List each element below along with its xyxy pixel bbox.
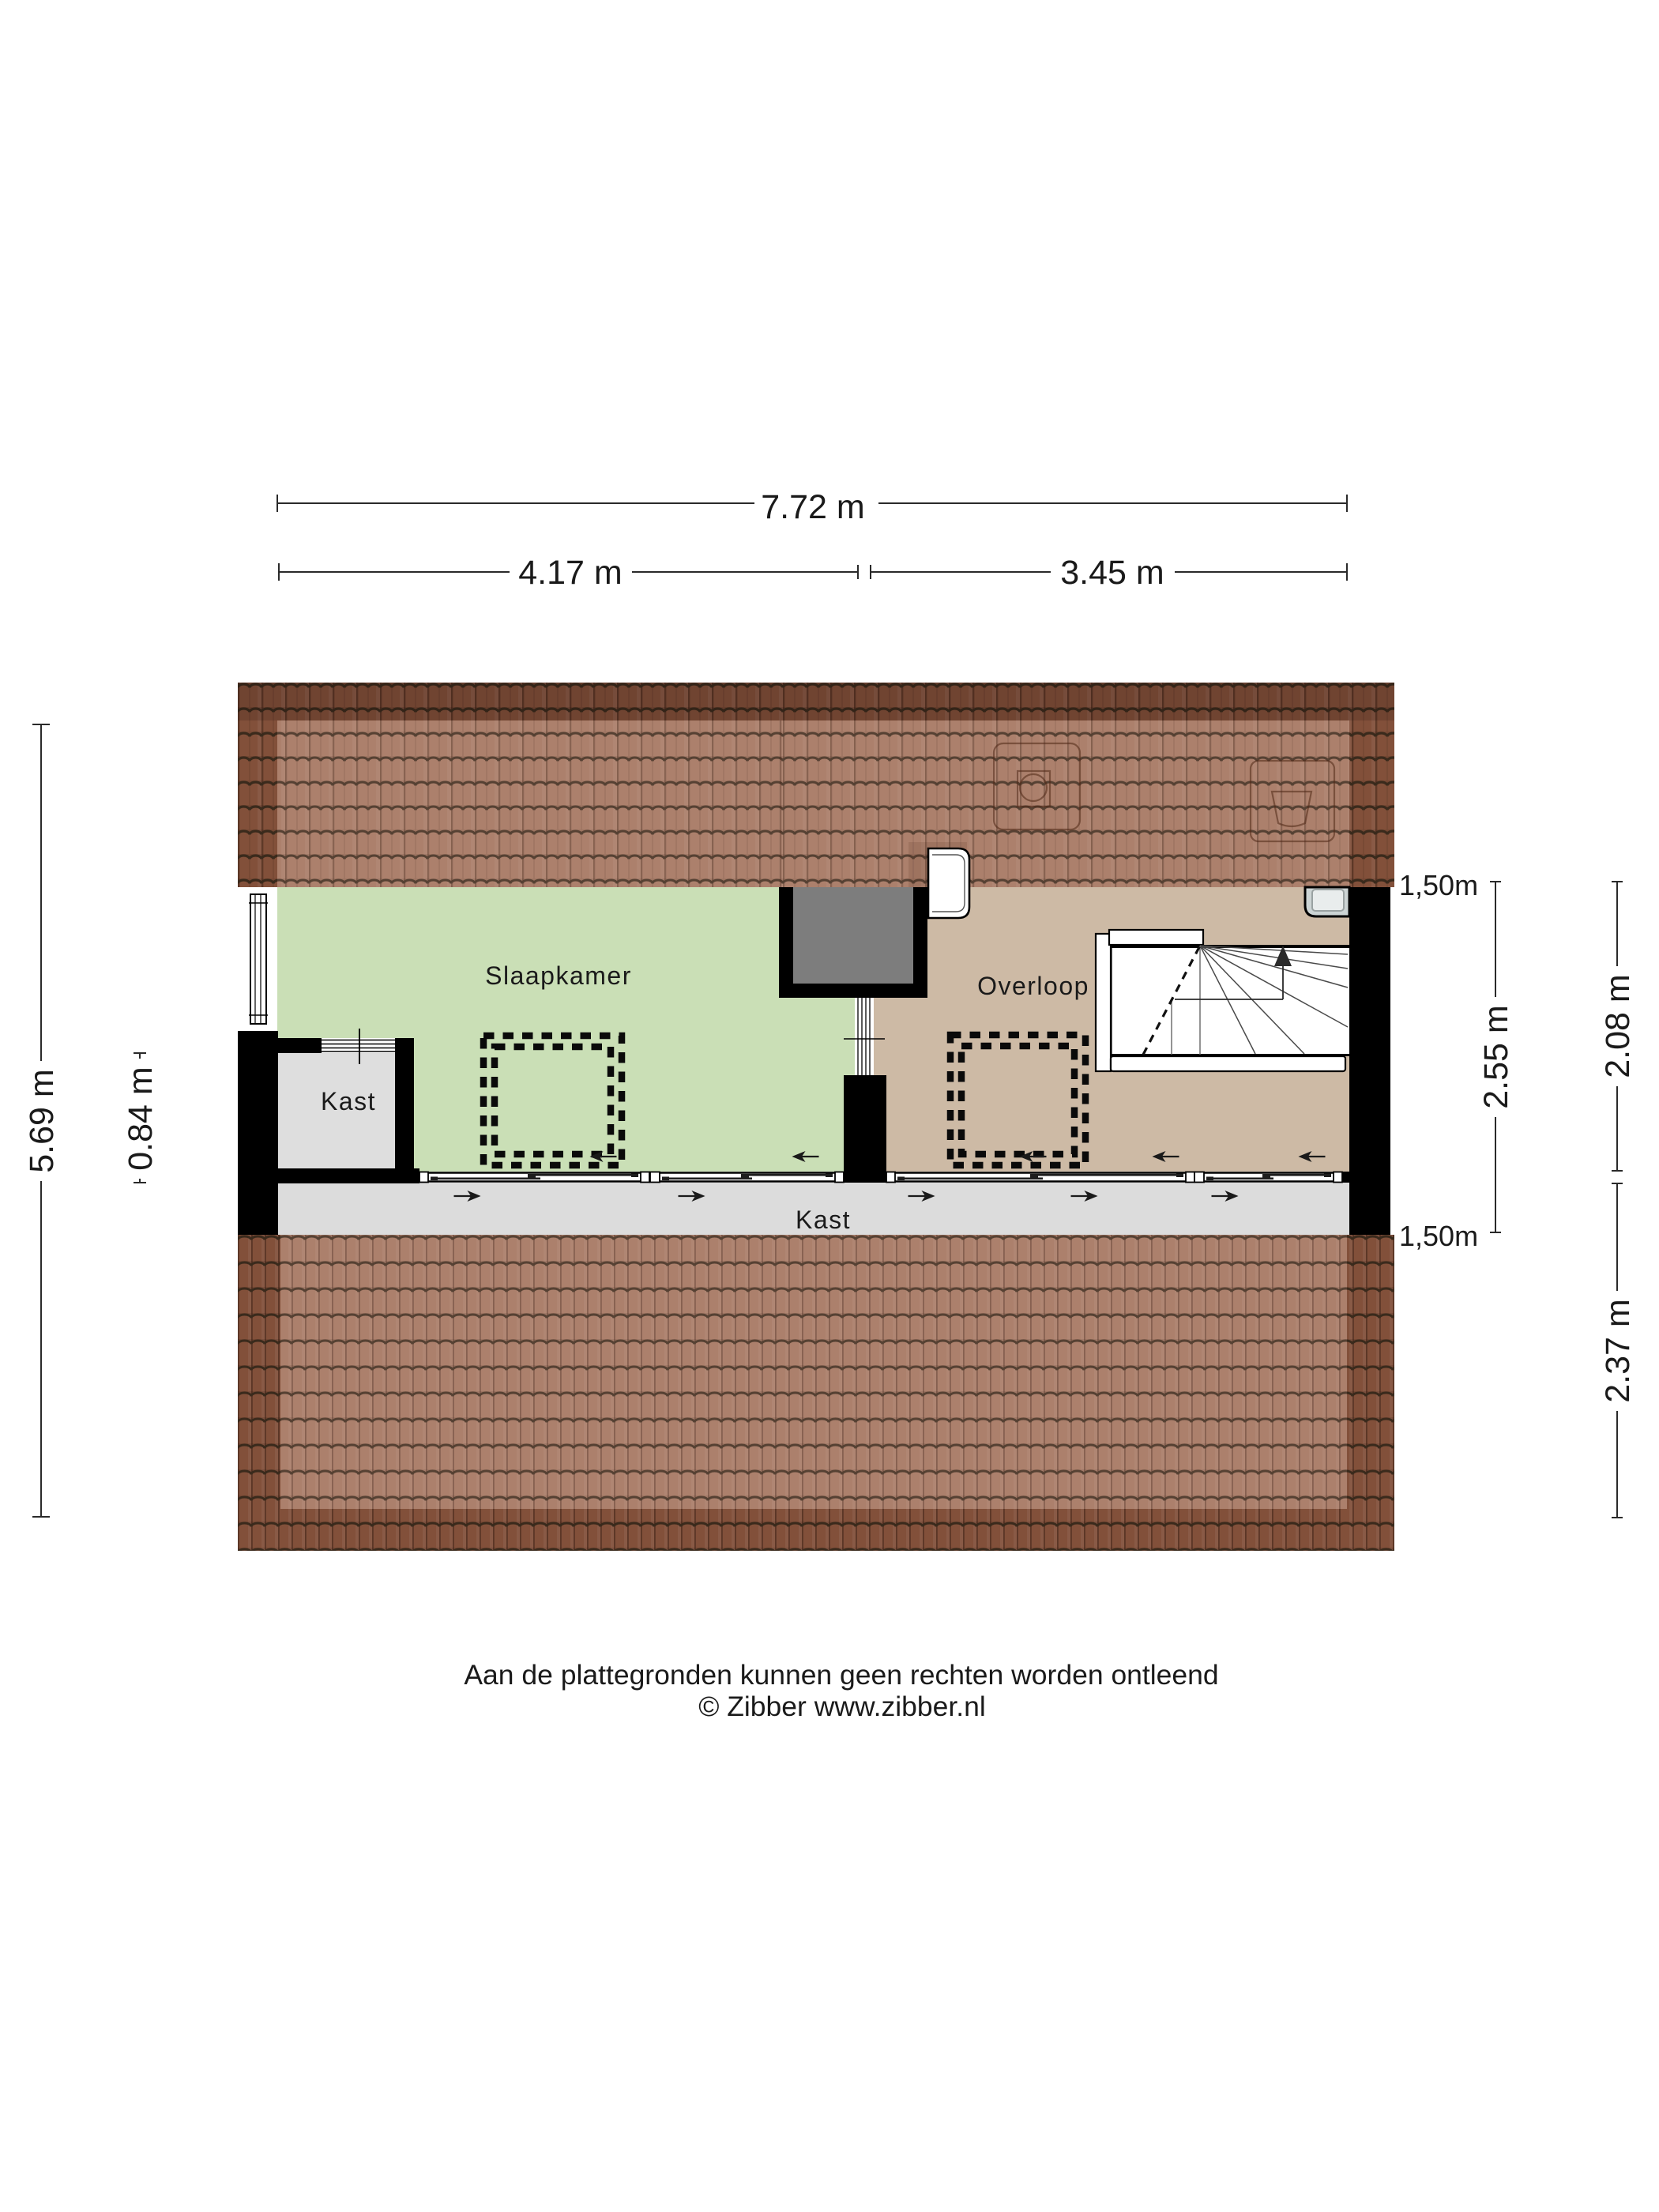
svg-text:Kast: Kast — [796, 1206, 851, 1234]
svg-text:5.69 m: 5.69 m — [23, 1069, 61, 1172]
svg-text:Aan de plattegronden kunnen ge: Aan de plattegronden kunnen geen rechten… — [464, 1659, 1218, 1691]
svg-text:© Zibber www.zibber.nl: © Zibber www.zibber.nl — [698, 1691, 986, 1722]
svg-text:3.45 m: 3.45 m — [1060, 554, 1164, 592]
svg-text:1,50m: 1,50m — [1399, 869, 1478, 901]
svg-text:Kast: Kast — [321, 1087, 376, 1115]
svg-text:1,50m: 1,50m — [1399, 1220, 1478, 1252]
svg-text:7.72 m: 7.72 m — [761, 488, 864, 526]
svg-text:Overloop: Overloop — [977, 972, 1089, 1000]
svg-text:2.55 m: 2.55 m — [1477, 1005, 1515, 1108]
svg-text:2.08 m: 2.08 m — [1599, 974, 1637, 1078]
svg-text:4.17 m: 4.17 m — [518, 554, 622, 592]
svg-text:0.84 m: 0.84 m — [122, 1066, 160, 1170]
svg-text:Slaapkamer: Slaapkamer — [485, 961, 632, 990]
svg-text:2.37 m: 2.37 m — [1599, 1299, 1637, 1402]
